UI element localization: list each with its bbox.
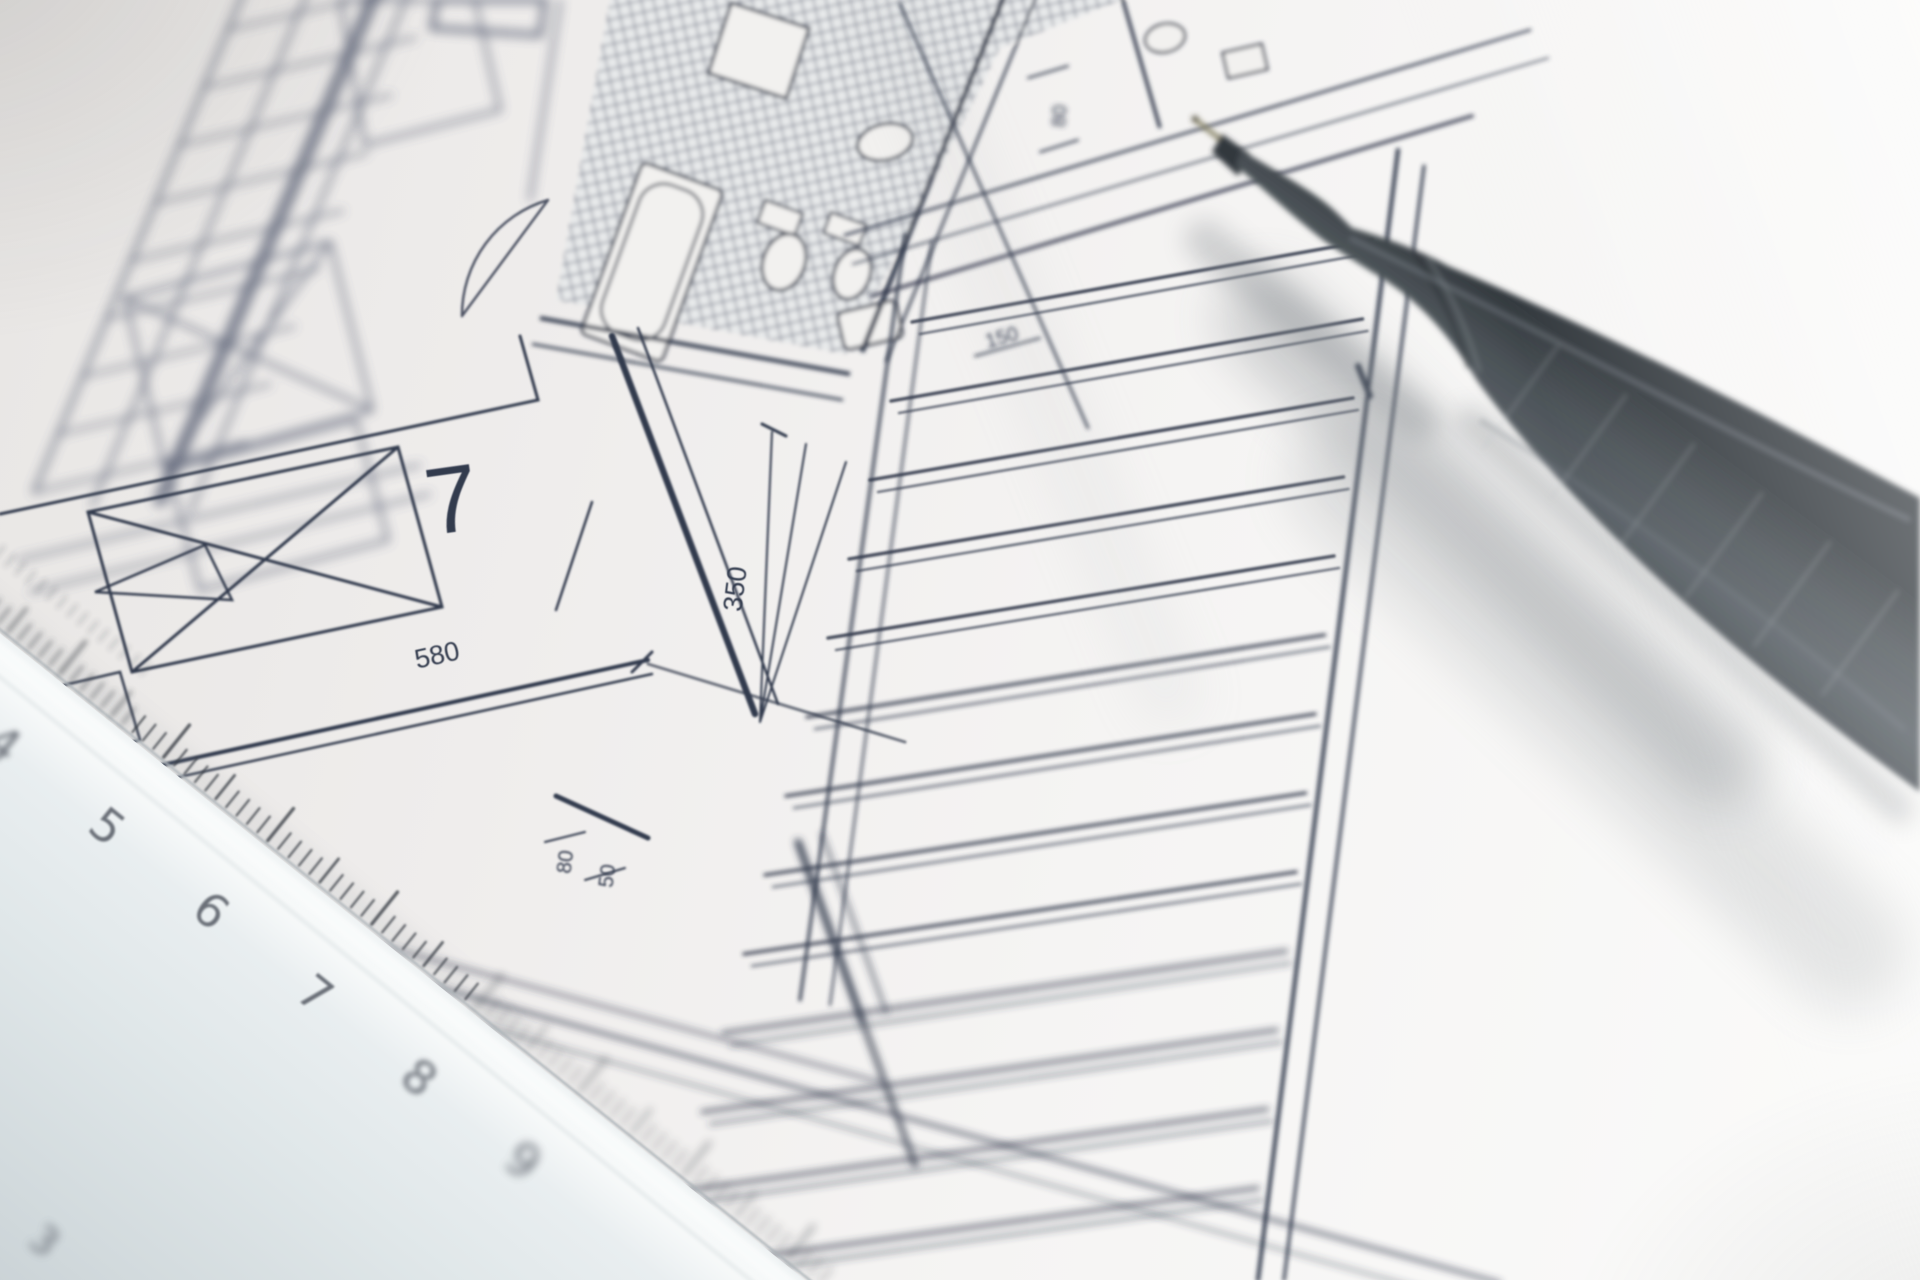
ruler-far-tick: [78, 613, 87, 624]
photo-architectural-plan: 7 580 350 80 50 150 80: [0, 0, 1920, 1280]
deck-plank: [681, 1109, 1268, 1191]
bath-wall: [1120, 0, 1160, 128]
deck-plank: [689, 1121, 1273, 1203]
ruler-far-tick: [110, 638, 119, 649]
ruler-tick: [673, 1151, 686, 1167]
ruler-tick: [621, 1109, 634, 1125]
plan-staircase: [18, 0, 640, 592]
deck-plank: [870, 398, 1353, 480]
door-leaf: [556, 502, 592, 610]
hall-wall: [532, 344, 843, 400]
stair-step: [228, 0, 440, 30]
ruler-tick: [559, 1059, 572, 1075]
deck-planks-mid: [744, 635, 1330, 966]
ruler-tick: [611, 1101, 624, 1117]
lower-right-wall: [798, 842, 862, 1020]
room-number-label: 7: [418, 444, 485, 556]
ruler-far-tick: [47, 588, 56, 599]
ruler-tick: [632, 1109, 651, 1132]
ruler-tick: [653, 1134, 666, 1150]
ruler-tick: [746, 1209, 759, 1225]
ruler-far-tick: [26, 572, 35, 583]
ruler-far-tick: [130, 655, 139, 666]
ruler-tick: [705, 1176, 718, 1192]
deck-plank: [773, 805, 1311, 887]
ruler-far-tick: [16, 563, 25, 574]
ruler-far-tick: [6, 555, 15, 566]
balcony-door-swing: [760, 432, 846, 722]
deck-plank: [752, 884, 1301, 966]
deck-plank: [710, 1042, 1282, 1124]
ruler-far-tick: [0, 546, 4, 557]
stair-step: [155, 153, 367, 203]
plan-photo-canvas: 7 580 350 80 50 150 80: [0, 0, 1920, 1280]
ruler-tick: [777, 1234, 790, 1250]
deck-plank: [828, 556, 1334, 638]
deck-plank: [723, 951, 1287, 1033]
ruler-tick: [725, 1192, 738, 1208]
deck-plank: [836, 568, 1339, 650]
ruler-far-tick: [99, 630, 108, 641]
deck-plank: [878, 410, 1358, 492]
small-fixture: [1142, 20, 1187, 56]
dim-label-80: 80: [553, 849, 579, 875]
top-edge-box: [432, 0, 545, 35]
ruler-far-tick: [68, 605, 77, 616]
bed-detail: [95, 545, 232, 600]
ruler-tick: [757, 1217, 770, 1233]
ruler-far-tick: [89, 622, 98, 633]
stair-step: [131, 211, 343, 261]
stair-step: [58, 384, 270, 434]
stair-stringer: [34, 0, 252, 492]
pen-tip-point: [1192, 116, 1198, 122]
door-swing: [462, 200, 548, 316]
small-fixture: [1223, 44, 1268, 78]
ruler-tick: [549, 1050, 562, 1066]
ruler-tick: [694, 1167, 707, 1183]
dim-tick: [545, 832, 585, 842]
wall-stub: [556, 796, 648, 838]
bed-outline: [88, 447, 442, 672]
stair-step: [204, 38, 416, 88]
ruler-tick: [569, 1067, 582, 1083]
lower-right-wall: [862, 1020, 915, 1165]
deck-planks-blurred: [660, 951, 1292, 1280]
deck-plank: [702, 1030, 1277, 1112]
ruler-tick: [663, 1142, 676, 1158]
deck-plank: [794, 726, 1320, 808]
dim-tick: [1040, 140, 1078, 152]
room-right-wall: [612, 336, 755, 714]
ruler-tick: [767, 1226, 780, 1242]
deck-plank: [786, 714, 1315, 796]
ruler-far-tick: [58, 597, 67, 608]
dim-label-80-top: 80: [1048, 104, 1071, 127]
dim-label-50: 50: [595, 863, 621, 889]
ruler-tick: [819, 1268, 832, 1280]
ruler-tick: [642, 1126, 655, 1142]
deck-plank: [807, 635, 1325, 717]
deck-plank: [815, 647, 1330, 729]
dim-label-350: 350: [717, 565, 752, 613]
stair-steps: [34, 0, 464, 492]
dim-label-580: 580: [412, 635, 462, 674]
stair-stringer: [92, 0, 310, 506]
ruler-tick: [528, 1026, 547, 1049]
deck-plank: [765, 793, 1306, 875]
ruler-tick: [601, 1092, 614, 1108]
dim-tick: [762, 424, 786, 436]
deck-plank: [731, 963, 1292, 1045]
dim-tick: [1028, 66, 1068, 78]
ruler-tick: [590, 1084, 603, 1100]
